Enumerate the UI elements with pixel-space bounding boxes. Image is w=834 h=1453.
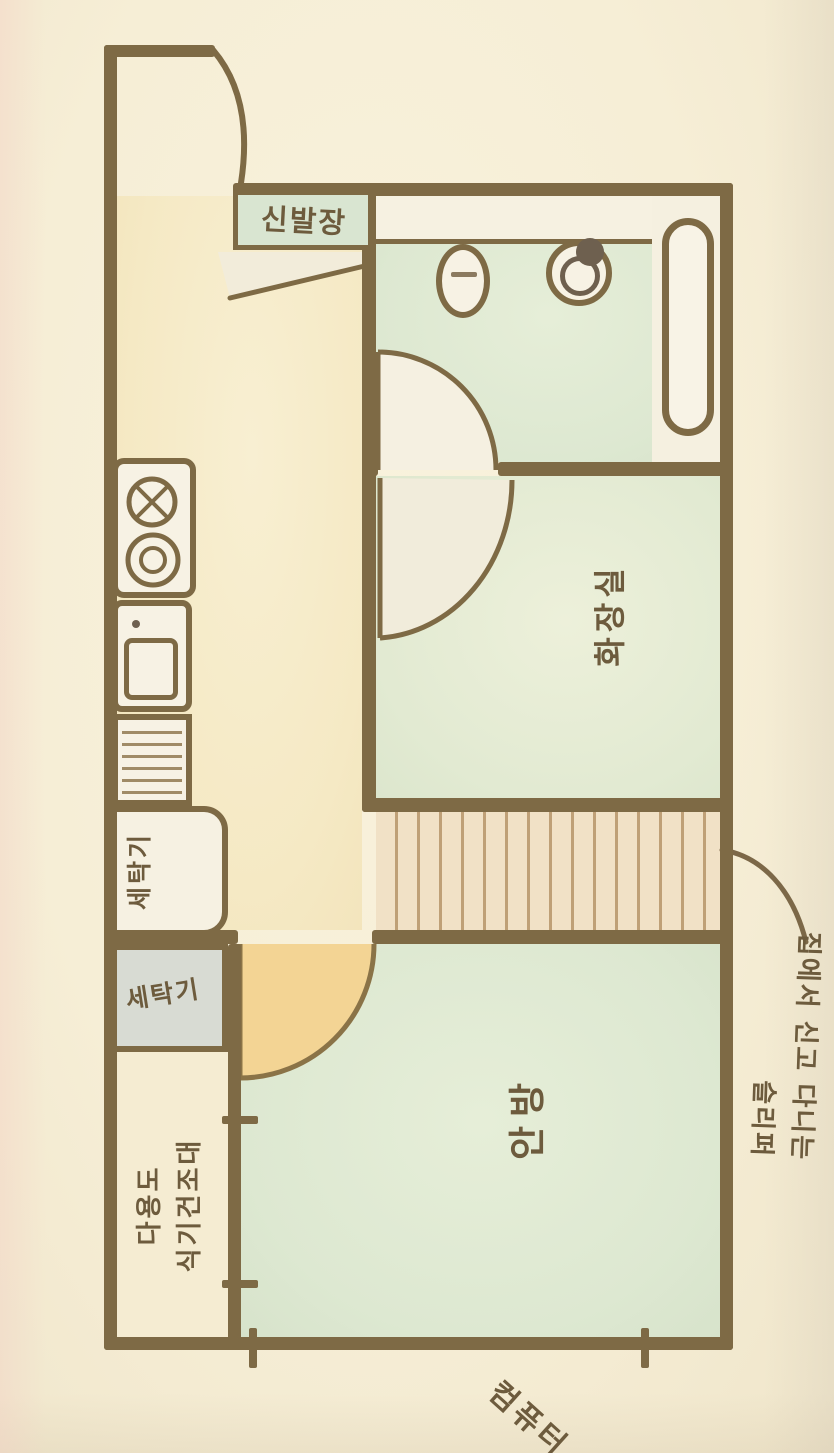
- inner-room-bottom-wall: [362, 798, 733, 812]
- annotation-line2: 슬리퍼: [737, 1080, 783, 1261]
- bathroom-room-label: 화장실: [590, 515, 630, 715]
- outer-wall-bottom: [104, 1337, 733, 1350]
- stove-burner-rings-icon: [128, 535, 178, 585]
- utility-area-line1: 다용도: [130, 1080, 170, 1330]
- dimension-tick-4: [641, 1328, 649, 1368]
- utility-divider-wall: [228, 944, 241, 1350]
- linework-overlay: [0, 0, 834, 1453]
- bathroom-wall-left-seg: [362, 462, 378, 476]
- corridor-annotation: 집에서 신고 다니는 슬리퍼: [737, 930, 828, 1263]
- stove-burner-inner-ring: [141, 548, 165, 572]
- entry-door-swing-icon: [213, 50, 244, 183]
- master-bedroom-label: 안방: [506, 1017, 550, 1217]
- shoe-closet-label: 신발장: [239, 195, 369, 248]
- bedroom-top-wall-right: [372, 930, 733, 944]
- kitchen-divider-wall: [362, 190, 376, 812]
- dimension-tick-2: [222, 1280, 258, 1288]
- stove-burner-cross-lines: [137, 487, 167, 517]
- entry-step: [218, 252, 373, 298]
- washing-machine-alcove-label: 세탁기: [121, 791, 159, 951]
- outer-wall-right: [720, 183, 733, 1350]
- entry-stub-vertical: [104, 45, 117, 190]
- entry-stub-horizontal: [104, 45, 215, 57]
- outer-wall-left: [104, 183, 117, 1350]
- dimension-tick-3: [249, 1328, 257, 1368]
- floor-plan-page: 신발장 화장실 안방 세탁기 세탁기 다용도 식기건조대 집에서 신고 다니는 …: [0, 0, 834, 1453]
- utility-area-label: 다용도 식기건조대: [130, 1080, 214, 1330]
- dimension-tick-1: [222, 1116, 258, 1124]
- utility-area-line2: 식기건조대: [170, 1080, 210, 1330]
- bathroom-wall-right-seg: [498, 462, 733, 476]
- annotation-leader-line: [722, 850, 806, 942]
